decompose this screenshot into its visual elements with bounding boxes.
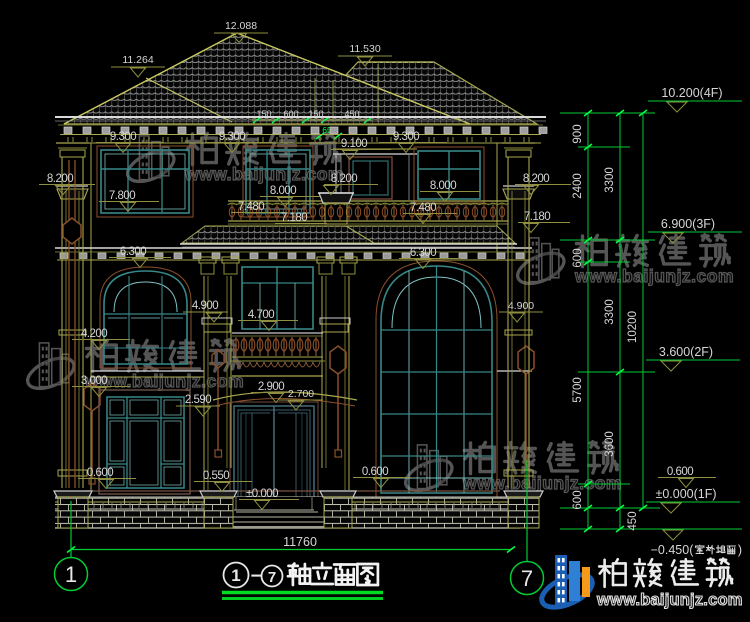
svg-text:11.530: 11.530 [349,43,380,55]
svg-text:3300: 3300 [604,299,616,325]
svg-text:11.264: 11.264 [122,54,153,66]
svg-text:7.180: 7.180 [281,212,307,224]
svg-text:7: 7 [521,566,533,591]
svg-text:7.800: 7.800 [109,190,135,202]
svg-text:9.100: 9.100 [341,138,367,150]
svg-text:600: 600 [572,248,584,267]
svg-text:±0.000(1F): ±0.000(1F) [655,487,716,501]
svg-text:600: 600 [572,490,584,509]
svg-text:2.900: 2.900 [258,381,284,393]
svg-text:5700: 5700 [572,377,584,403]
svg-text:0.550: 0.550 [203,470,229,482]
svg-text:0.600: 0.600 [87,467,113,479]
svg-text:www.baijunjz.com: www.baijunjz.com [84,371,244,391]
svg-text:6.900(3F): 6.900(3F) [661,217,715,231]
svg-text:7.480: 7.480 [410,202,436,214]
svg-text:2.700: 2.700 [288,388,314,400]
svg-text:9.300: 9.300 [219,131,245,143]
svg-text:3.600(2F): 3.600(2F) [659,345,713,359]
svg-text:3600: 3600 [604,431,616,457]
svg-text:www.baijunjz.com: www.baijunjz.com [184,164,344,184]
svg-text:8.000: 8.000 [430,180,456,192]
svg-text:6.300: 6.300 [410,247,436,259]
svg-text:4.900: 4.900 [192,300,218,312]
svg-text:4.700: 4.700 [248,309,274,321]
svg-text:9.300: 9.300 [393,131,419,143]
svg-text:12.088: 12.088 [225,20,257,32]
svg-text:www.baijunjz.com: www.baijunjz.com [574,266,734,286]
svg-text:3300: 3300 [604,167,616,193]
svg-text:11760: 11760 [283,535,317,549]
svg-text:−0.450(: −0.450( [651,543,695,557]
svg-text:8.200: 8.200 [523,173,549,185]
svg-text:4.200: 4.200 [81,328,107,340]
svg-text:900: 900 [572,124,584,143]
svg-text:www.baijunjz.com: www.baijunjz.com [462,473,622,493]
svg-text:7.180: 7.180 [524,211,550,223]
svg-text:−: − [250,566,261,587]
svg-text:8.200: 8.200 [331,173,357,185]
svg-text:4.900: 4.900 [508,300,534,312]
svg-text:450: 450 [627,511,639,530]
svg-text:0.600: 0.600 [362,466,388,478]
svg-text:2.590: 2.590 [185,394,211,406]
svg-text:2400: 2400 [572,173,584,199]
svg-text:10200: 10200 [627,311,639,343]
svg-text:6.300: 6.300 [120,246,146,258]
svg-text:8.200: 8.200 [47,173,73,185]
svg-text:±0.000: ±0.000 [246,488,278,500]
svg-text:): ) [738,543,742,557]
svg-text:7.480: 7.480 [238,201,264,213]
svg-text:0.600: 0.600 [667,466,693,478]
svg-text:1: 1 [231,566,240,585]
svg-text:3.000: 3.000 [81,375,107,387]
svg-text:1: 1 [65,562,77,587]
svg-text:8.000: 8.000 [270,185,296,197]
svg-text:10.200(4F): 10.200(4F) [661,86,722,100]
svg-text:9.300: 9.300 [110,131,136,143]
svg-text:7: 7 [268,569,276,586]
svg-text:www.baijunjz.com: www.baijunjz.com [596,591,743,609]
